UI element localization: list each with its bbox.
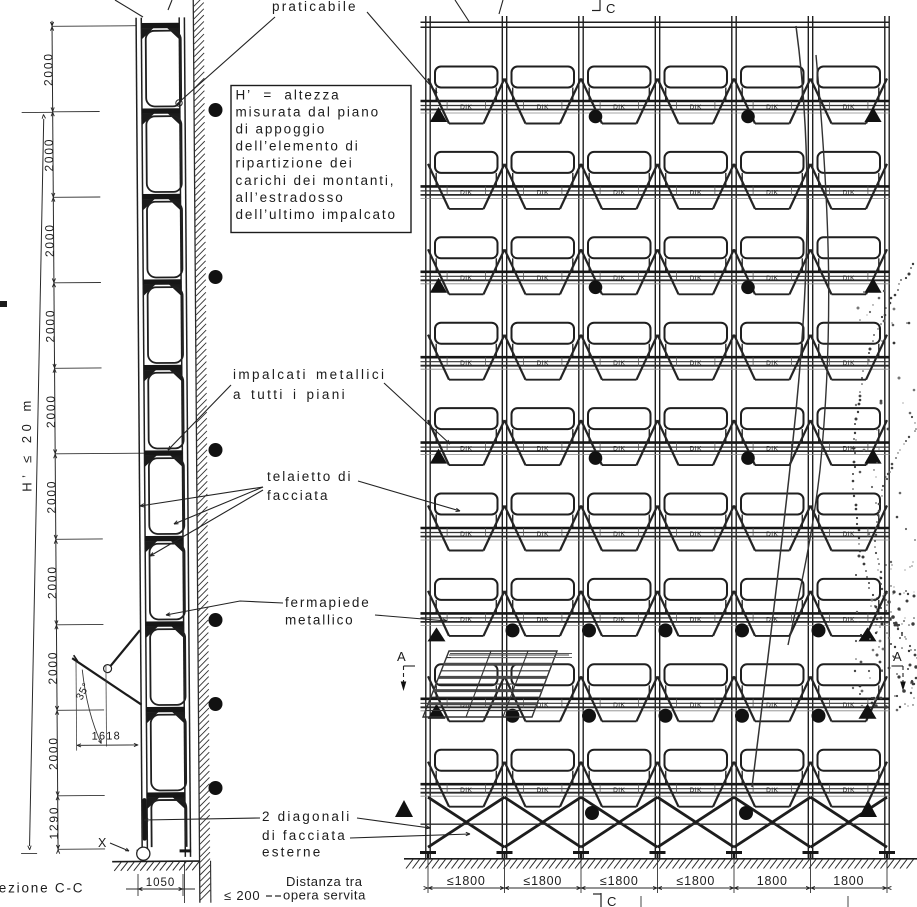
svg-text:DIK: DIK <box>537 531 550 538</box>
svg-text:DIK: DIK <box>537 360 550 367</box>
svg-text:C: C <box>606 1 615 16</box>
svg-text:metallico: metallico <box>285 613 354 628</box>
svg-text:DIK: DIK <box>766 275 779 282</box>
svg-text:di appoggio: di appoggio <box>236 122 327 137</box>
svg-text:DIK: DIK <box>690 104 703 111</box>
svg-text:dell’elemento di: dell’elemento di <box>236 139 360 154</box>
svg-text:DIK: DIK <box>537 787 550 794</box>
svg-text:DIK: DIK <box>843 360 856 367</box>
svg-text:DIK: DIK <box>613 446 626 453</box>
svg-text:DIK: DIK <box>690 787 703 794</box>
svg-text:DIK: DIK <box>460 616 473 623</box>
svg-text:2000: 2000 <box>46 651 60 685</box>
svg-text:DIK: DIK <box>460 275 473 282</box>
svg-text:DIK: DIK <box>690 446 703 453</box>
svg-text:1050: 1050 <box>146 877 176 889</box>
svg-text:Sezione C-C: Sezione C-C <box>0 881 84 896</box>
svg-text:DIK: DIK <box>460 531 473 538</box>
svg-text:≤1800: ≤1800 <box>676 874 715 888</box>
svg-text:DIK: DIK <box>843 702 856 709</box>
svg-text:DIK: DIK <box>460 360 473 367</box>
svg-text:DIK: DIK <box>766 189 779 196</box>
svg-text:2000: 2000 <box>42 223 56 257</box>
svg-text:1290: 1290 <box>47 806 61 840</box>
svg-text:esterne: esterne <box>262 845 322 860</box>
svg-text:DIK: DIK <box>537 702 550 709</box>
svg-text:DIK: DIK <box>537 275 550 282</box>
svg-text:DIK: DIK <box>537 616 550 623</box>
svg-text:DIK: DIK <box>766 360 779 367</box>
svg-text:1800: 1800 <box>757 874 788 888</box>
svg-text:DIK: DIK <box>460 104 473 111</box>
svg-text:2000: 2000 <box>46 736 60 770</box>
svg-text:carichi dei montanti,: carichi dei montanti, <box>236 173 396 188</box>
svg-text:a tutti i piani: a tutti i piani <box>233 387 347 402</box>
svg-text:2000: 2000 <box>44 480 58 514</box>
svg-text:2000: 2000 <box>43 309 57 343</box>
svg-text:DIK: DIK <box>843 616 856 623</box>
svg-text:DIK: DIK <box>613 189 626 196</box>
svg-text:2000: 2000 <box>41 52 55 86</box>
svg-text:X: X <box>98 836 107 850</box>
svg-text:DIK: DIK <box>537 189 550 196</box>
svg-text:DIK: DIK <box>613 531 626 538</box>
svg-text:≤1800: ≤1800 <box>447 874 486 888</box>
svg-text:≤1800: ≤1800 <box>523 874 562 888</box>
svg-text:DIK: DIK <box>613 616 626 623</box>
svg-text:facciata: facciata <box>267 488 330 503</box>
svg-text:DIK: DIK <box>766 446 779 453</box>
svg-text:fermapiede: fermapiede <box>285 595 371 610</box>
svg-text:DIK: DIK <box>537 446 550 453</box>
svg-text:DIK: DIK <box>613 360 626 367</box>
svg-text:2000: 2000 <box>42 138 56 172</box>
svg-text:2000: 2000 <box>44 394 58 428</box>
svg-text:praticabile: praticabile <box>272 0 358 14</box>
svg-text:≤ 200: ≤ 200 <box>224 888 260 903</box>
svg-text:DIK: DIK <box>537 104 550 111</box>
svg-text:di facciata: di facciata <box>262 828 347 843</box>
svg-text:DIK: DIK <box>613 787 626 794</box>
svg-text:DIK: DIK <box>843 787 856 794</box>
svg-text:1800: 1800 <box>833 874 864 888</box>
svg-text:ripartizione dei: ripartizione dei <box>236 156 354 171</box>
svg-text:DIK: DIK <box>690 616 703 623</box>
svg-text:1618: 1618 <box>92 730 121 742</box>
svg-text:DIK: DIK <box>460 446 473 453</box>
svg-text:DIK: DIK <box>843 275 856 282</box>
svg-text:2 diagonali: 2 diagonali <box>262 809 352 824</box>
svg-text:DIK: DIK <box>766 104 779 111</box>
svg-text:DIK: DIK <box>613 275 626 282</box>
svg-text:DIK: DIK <box>690 531 703 538</box>
svg-text:telaietto di: telaietto di <box>267 469 353 484</box>
svg-text:DIK: DIK <box>460 189 473 196</box>
svg-text:DIK: DIK <box>460 787 473 794</box>
svg-text:DIK: DIK <box>766 787 779 794</box>
svg-text:DIK: DIK <box>843 531 856 538</box>
svg-text:DIK: DIK <box>843 189 856 196</box>
svg-text:DIK: DIK <box>613 104 626 111</box>
svg-text:≤1800: ≤1800 <box>600 874 639 888</box>
svg-text:C: C <box>607 894 616 907</box>
svg-text:H’ = altezza: H’ = altezza <box>236 88 341 103</box>
svg-text:DIK: DIK <box>690 360 703 367</box>
svg-text:impalcati metallici: impalcati metallici <box>233 367 386 382</box>
svg-text:all’estradosso: all’estradosso <box>236 190 345 205</box>
svg-text:dell’ultimo impalcato: dell’ultimo impalcato <box>236 207 397 222</box>
svg-text:misurata dal piano: misurata dal piano <box>236 105 381 120</box>
svg-text:opera servita: opera servita <box>283 888 366 903</box>
svg-text:A: A <box>397 649 406 664</box>
svg-text:H’ ≤ 20 m: H’ ≤ 20 m <box>19 396 35 492</box>
svg-text:DIK: DIK <box>843 104 856 111</box>
svg-text:DIK: DIK <box>690 275 703 282</box>
svg-text:2000: 2000 <box>45 565 59 599</box>
svg-text:DIK: DIK <box>690 702 703 709</box>
svg-text:DIK: DIK <box>766 702 779 709</box>
svg-text:DIK: DIK <box>613 702 626 709</box>
svg-text:DIK: DIK <box>690 189 703 196</box>
svg-text:DIK: DIK <box>766 531 779 538</box>
